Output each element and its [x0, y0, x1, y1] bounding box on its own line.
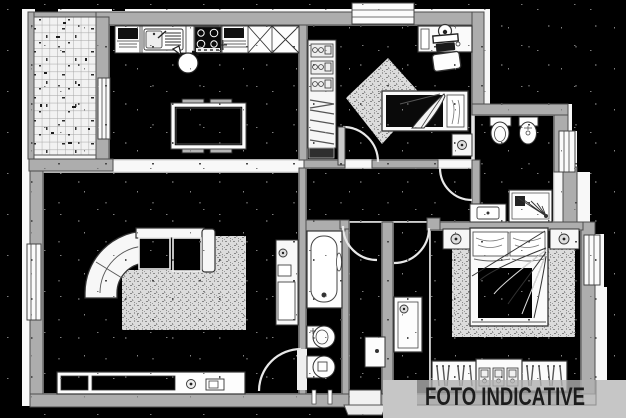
- svg-text:FOTO INDICATIVE: FOTO INDICATIVE: [425, 383, 585, 411]
